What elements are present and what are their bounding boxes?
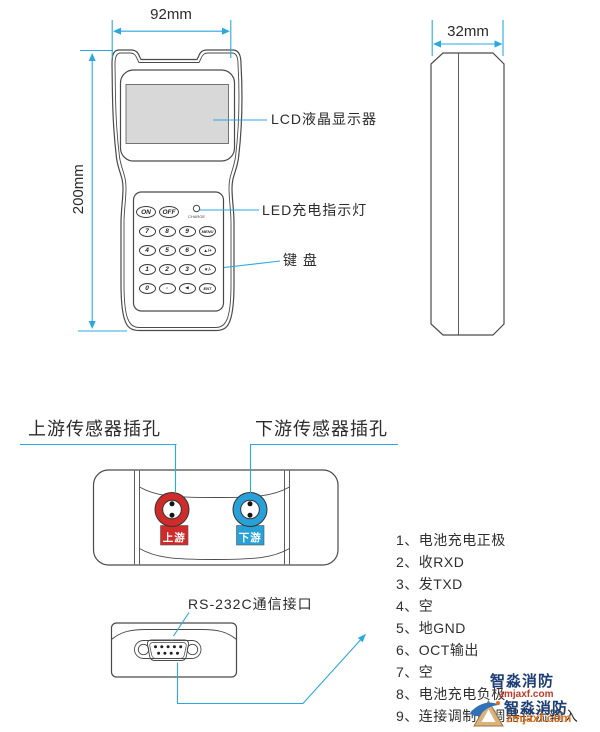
- key-ent: ENT: [199, 283, 216, 294]
- keypad-leader: [224, 261, 280, 268]
- pin-item-2: 2、收RXD: [396, 551, 578, 573]
- key-1: 1: [139, 264, 156, 275]
- front-height-dim: 200mm: [71, 154, 88, 224]
- key-backspace: ◀: [179, 283, 196, 294]
- key-8: 8: [159, 226, 176, 237]
- downstream-socket-label: 下游传感器插孔: [255, 420, 388, 440]
- key-0: 0: [139, 283, 156, 294]
- key-9: 9: [179, 226, 196, 237]
- side-width-dim: 32mm: [438, 24, 498, 41]
- key-down-minus: ▼/-: [199, 264, 216, 275]
- key-menu: MENU: [199, 226, 216, 237]
- keypad-callout-label: 键 盘: [283, 253, 318, 268]
- pin-item-3: 3、发TXD: [396, 573, 578, 595]
- db9-screw-hole: [187, 644, 197, 654]
- watermark-dot: [496, 701, 500, 705]
- key-dot: ·: [159, 283, 176, 294]
- rs232-view: [112, 623, 237, 677]
- rs232-label-leader: [174, 613, 190, 637]
- pin-item-6: 6、OCT输出: [396, 639, 578, 661]
- upstream-tag-text: 上游: [161, 530, 189, 545]
- bottom-bottom-contour: [140, 549, 290, 560]
- rs232-pin-arrow-line: [178, 640, 361, 703]
- watermark-url-2: zmjaxf.com: [506, 711, 571, 725]
- key-off: OFF: [159, 206, 179, 218]
- key-3: 3: [179, 264, 196, 275]
- led-callout-label: LED充电指示灯: [262, 203, 367, 218]
- key-up-plus: ▲/+: [199, 245, 216, 256]
- downstream-tag-text: 下游: [237, 530, 265, 545]
- lcd-screen: [126, 85, 229, 144]
- pin-item-5: 5、地GND: [396, 617, 578, 639]
- front-width-dim: 92mm: [141, 7, 201, 24]
- charge-led-label: CHARGE: [186, 214, 207, 219]
- db9-pins: [154, 645, 182, 655]
- key-6: 6: [179, 245, 196, 256]
- side-view: [431, 53, 504, 335]
- db9-screw-hole: [138, 644, 148, 654]
- side-outline: [431, 53, 504, 335]
- key-5: 5: [159, 245, 176, 256]
- diagram-page: 92mm 200mm 32mm LCD液晶显示器 LED充电指示灯 键 盘 上游…: [0, 0, 600, 732]
- watermark-logo: [468, 695, 508, 732]
- pin-item-4: 4、空: [396, 595, 578, 617]
- front-view: [112, 50, 242, 331]
- lcd-callout-label: LCD液晶显示器: [271, 112, 377, 127]
- key-4: 4: [139, 245, 156, 256]
- bottom-outline: [94, 470, 339, 565]
- bottom-view: [94, 470, 339, 565]
- rs232-title: RS-232C通信接口: [188, 597, 313, 612]
- db9-faceplate: [135, 641, 202, 659]
- dimension-92mm: [112, 20, 231, 58]
- key-7: 7: [139, 226, 156, 237]
- key-on: ON: [136, 206, 156, 218]
- upstream-socket-label: 上游传感器插孔: [28, 420, 161, 440]
- pin-item-1: 1、电池充电正极: [396, 529, 578, 551]
- charge-led: [193, 205, 199, 211]
- watermark-name-1: 智淼消防: [490, 670, 554, 691]
- db9-shell-inner: [150, 643, 187, 659]
- key-2: 2: [159, 264, 176, 275]
